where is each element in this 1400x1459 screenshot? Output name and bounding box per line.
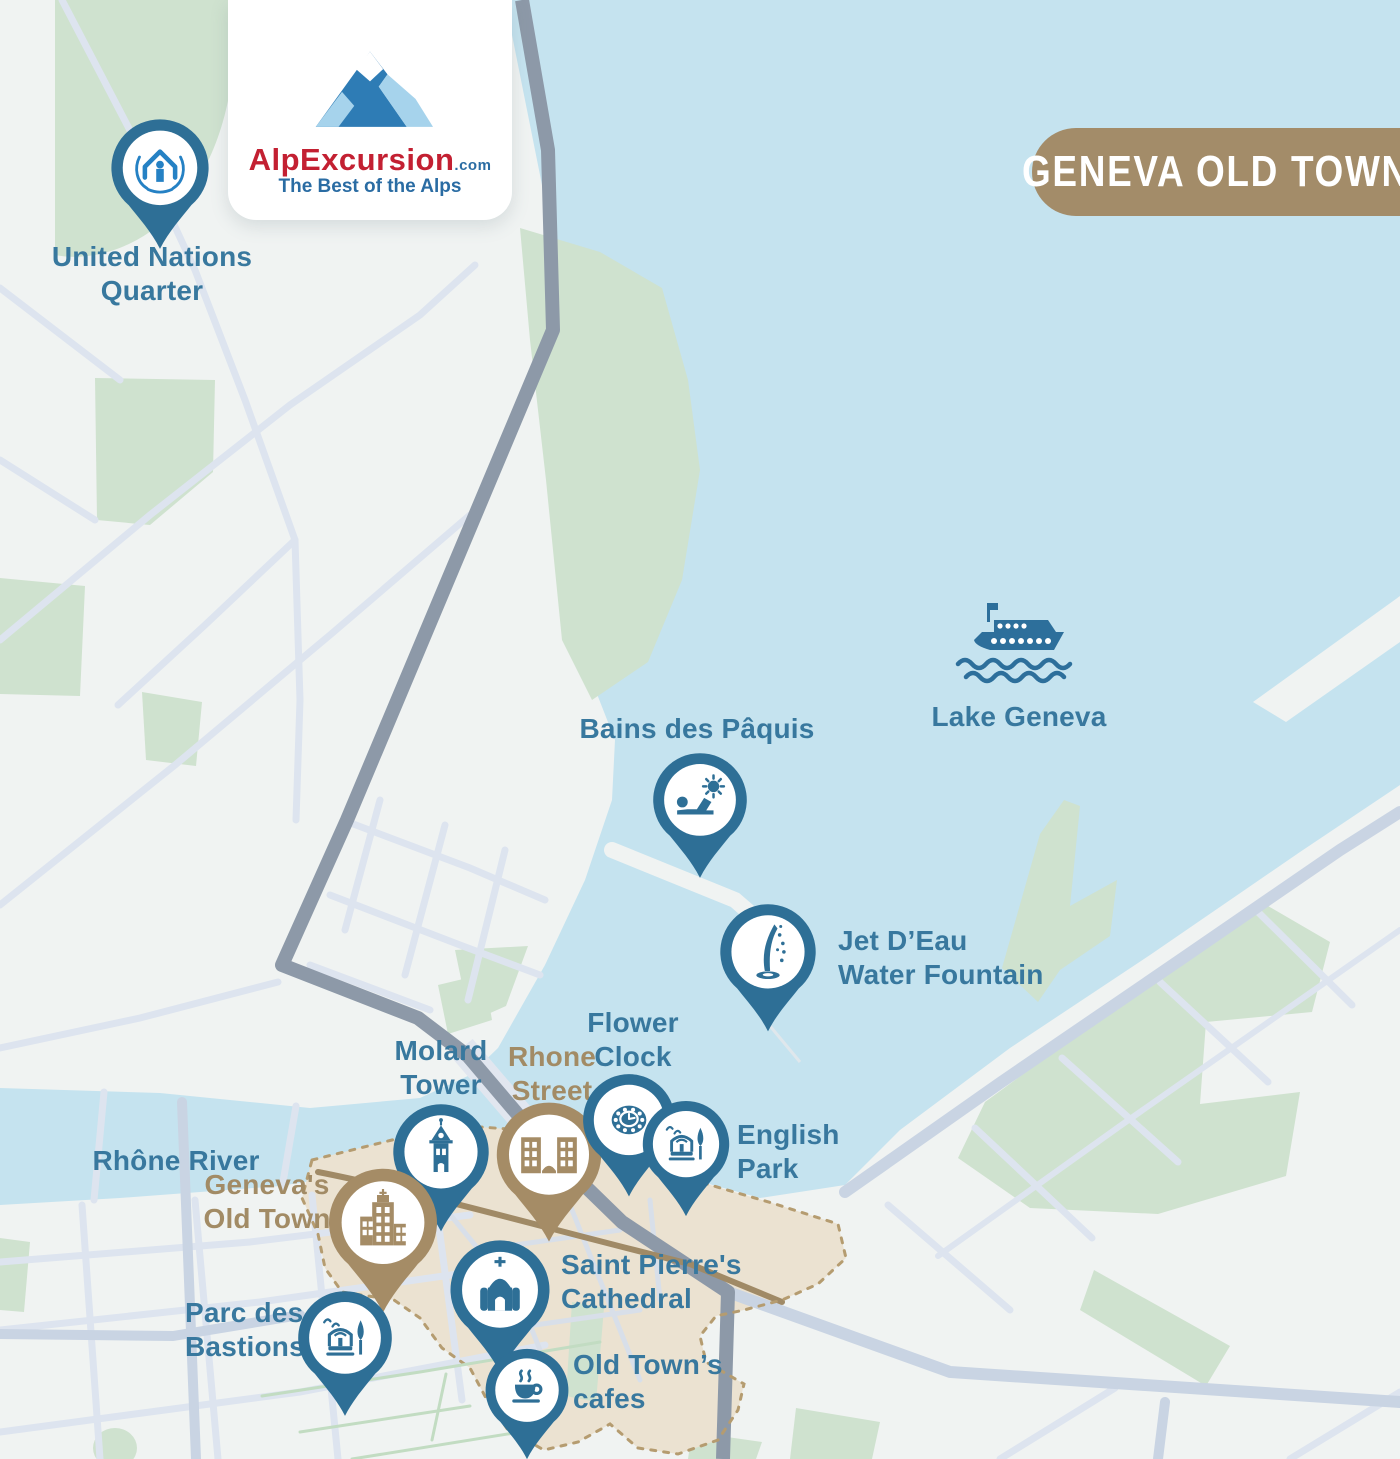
old-towns-cafes-pin[interactable]	[481, 1346, 573, 1459]
logo-brand: AlpExcursion.com	[228, 142, 512, 178]
molard-tower-label: MolardTower	[395, 1034, 488, 1102]
page-title: GENEVA OLD TOWN	[1022, 147, 1400, 197]
ship-icon	[930, 585, 1110, 695]
jet-deau-label: Jet D’EauWater Fountain	[838, 924, 1044, 992]
flower-clock-label: FlowerClock	[587, 1006, 678, 1074]
lake-geneva-label: Lake Geneva	[932, 700, 1107, 734]
bains-des-paquis-label: Bains des Pâquis	[579, 712, 814, 746]
parc-des-bastions-label: Parc desBastions	[185, 1296, 305, 1364]
logo-card: AlpExcursion.com The Best of the Alps	[228, 0, 512, 220]
bains-des-paquis-pin[interactable]	[648, 750, 752, 880]
english-park-pin[interactable]	[638, 1098, 734, 1218]
united-nations-label: United NationsQuarter	[52, 240, 252, 308]
english-park-label: EnglishPark	[737, 1118, 840, 1186]
mountain-logo-icon	[300, 28, 440, 140]
genevas-old-town-label: Geneva'sOld Town	[203, 1168, 330, 1236]
title-badge: GENEVA OLD TOWN	[1032, 128, 1400, 216]
jet-deau-pin[interactable]	[715, 901, 821, 1034]
logo-tagline: The Best of the Alps	[228, 176, 512, 198]
united-nations-pin[interactable]	[106, 116, 214, 251]
geneva-old-town-map: Lake Geneva Rhône River AlpExcursion.com…	[0, 0, 1400, 1459]
saint-pierres-cathedral-label: Saint Pierre'sCathedral	[561, 1248, 742, 1316]
parc-des-bastions-pin[interactable]	[293, 1288, 397, 1418]
old-towns-cafes-label: Old Town’scafes	[573, 1348, 723, 1416]
